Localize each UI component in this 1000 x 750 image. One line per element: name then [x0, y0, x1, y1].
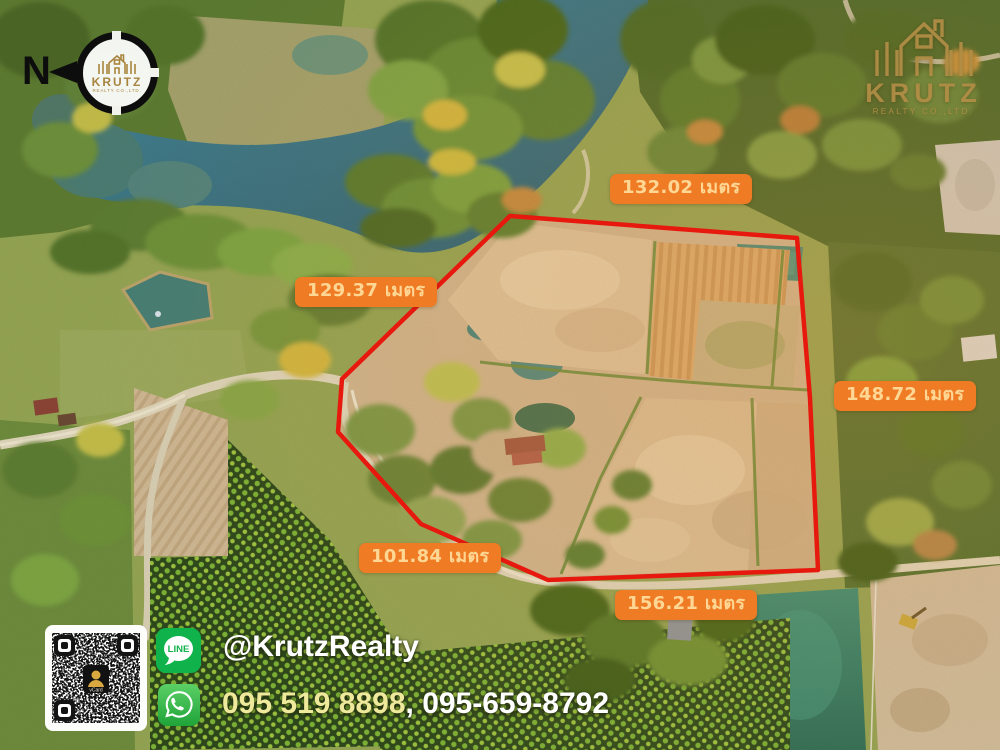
measurement-label-lower-left: 101.84 เมตร	[359, 543, 501, 573]
compass-ring-notch	[150, 68, 159, 77]
compass-ring-notch	[112, 31, 121, 40]
brand-name: KRUTZ	[846, 80, 1000, 107]
brand-name: KRUTZ	[92, 76, 143, 88]
compass-ring-notch	[112, 106, 121, 115]
measurement-label-bottom: 156.21 เมตร	[615, 590, 757, 620]
krutz-watermark: KRUTZ REALTY CO.,LTD.	[846, 16, 1000, 116]
line-handle: @KrutzRealty	[223, 630, 419, 664]
line-wordmark: LINE	[168, 644, 190, 655]
krutz-buildings-icon	[96, 52, 138, 76]
measurement-label-top: 132.02 เมตร	[610, 174, 752, 204]
north-label: N	[22, 49, 51, 94]
line-icon: LINE	[156, 628, 201, 673]
qr-code: vCard	[45, 625, 147, 731]
phone-primary: 095 519 8898	[222, 687, 406, 720]
krutz-logo-badge: KRUTZ REALTY CO.,LTD.	[76, 32, 158, 114]
land-listing-image: N KRUTZ REALTY CO.,LTD.	[0, 0, 1000, 750]
phone-secondary: 095-659-8792	[422, 687, 609, 720]
qr-center-badge: vCard	[83, 665, 109, 694]
phone-separator: ,	[406, 687, 423, 720]
qr-center-label: vCard	[89, 688, 103, 694]
phone-numbers: 095 519 8898, 095-659-8792	[222, 687, 609, 721]
whatsapp-icon	[158, 684, 200, 726]
north-arrow-icon	[49, 61, 77, 83]
measurement-label-right: 148.72 เมตร	[834, 381, 976, 411]
brand-subtitle: REALTY CO.,LTD.	[846, 107, 1000, 116]
krutz-buildings-icon	[869, 16, 979, 78]
measurement-label-upper-left: 129.37 เมตร	[295, 277, 437, 307]
brand-subtitle: REALTY CO.,LTD.	[92, 88, 141, 94]
